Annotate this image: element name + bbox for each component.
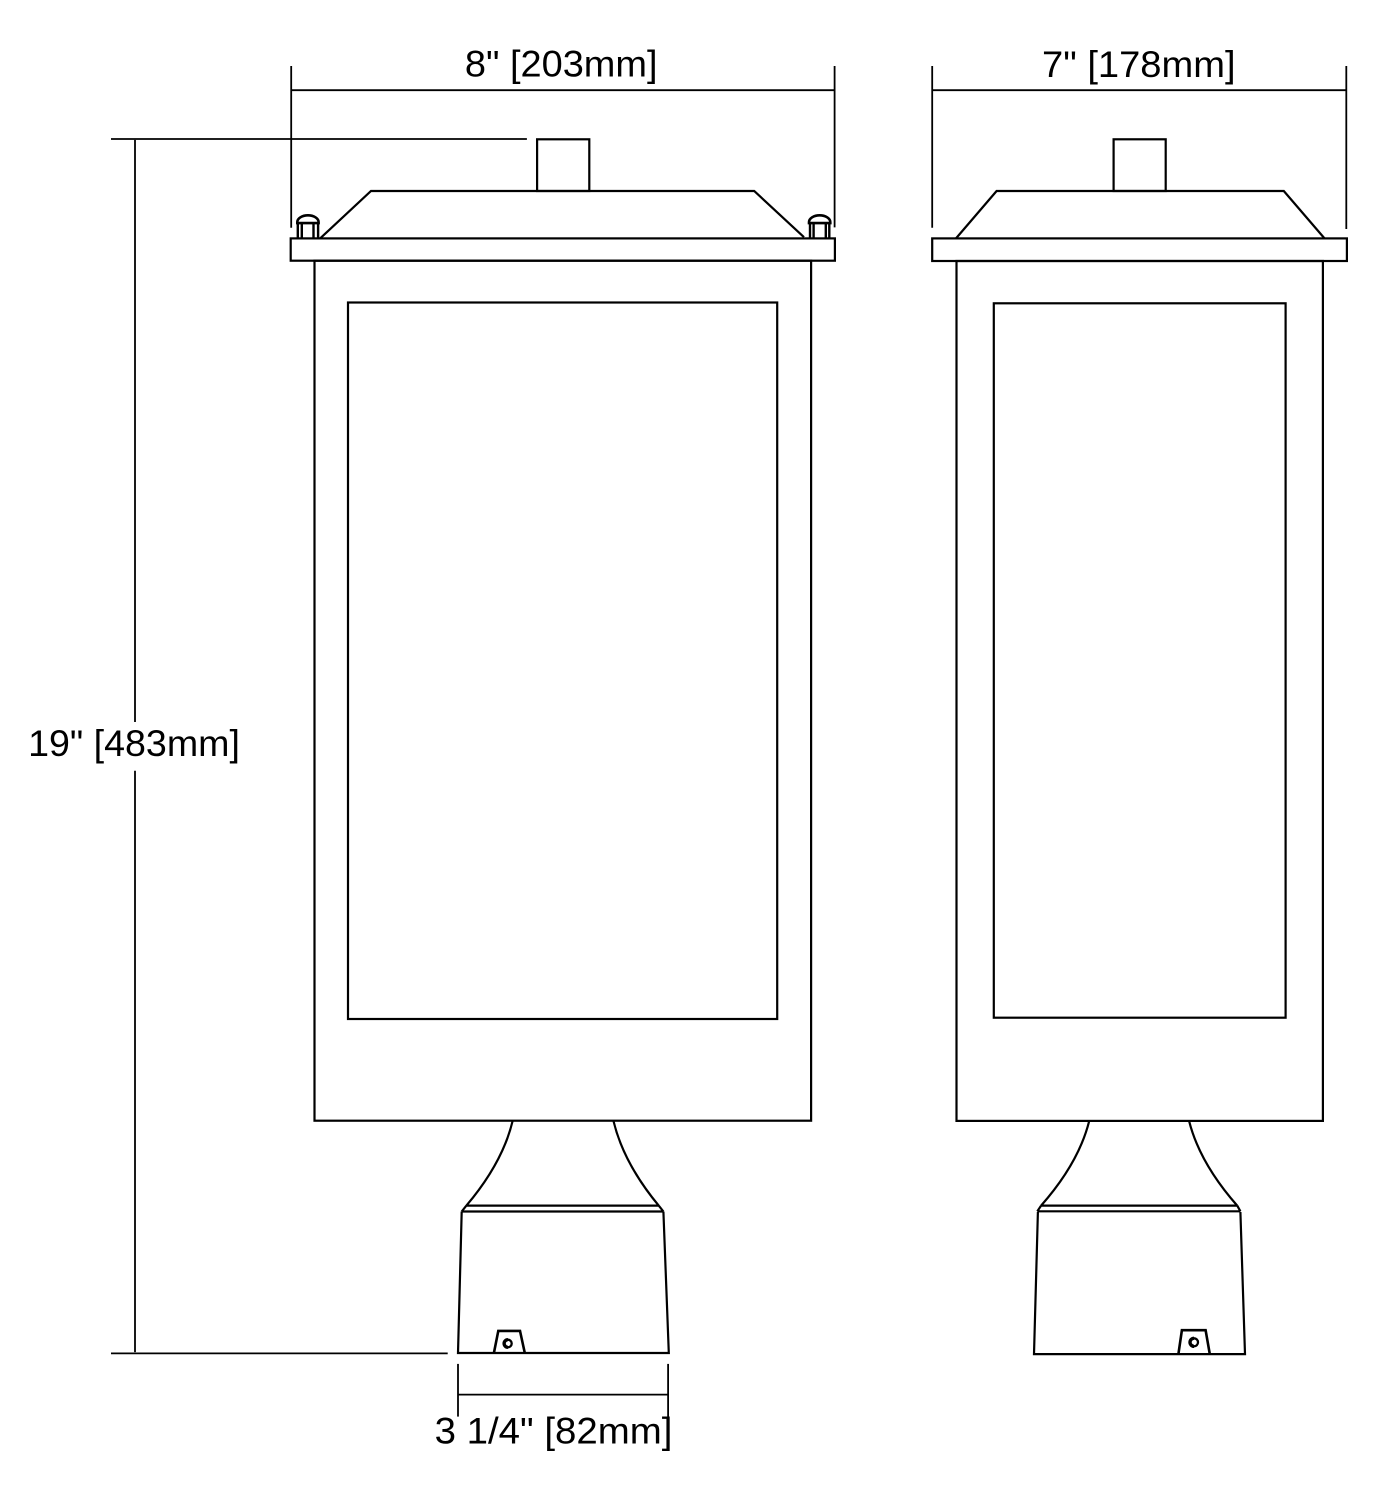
- svg-text:7" [178mm]: 7" [178mm]: [1042, 43, 1236, 85]
- svg-text:3 1/4" [82mm]: 3 1/4" [82mm]: [435, 1410, 673, 1452]
- svg-text:19" [483mm]: 19" [483mm]: [28, 722, 240, 764]
- svg-text:8" [203mm]: 8" [203mm]: [465, 42, 658, 84]
